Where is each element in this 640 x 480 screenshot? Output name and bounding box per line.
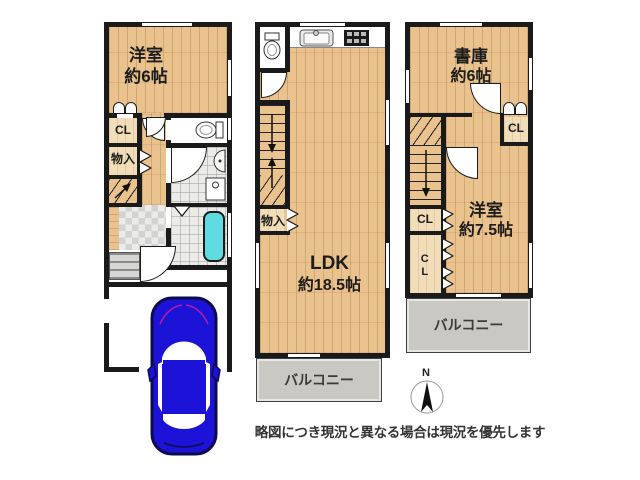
washbasin-icon <box>209 149 226 173</box>
f3-closet-bottom-label: CL <box>417 246 431 286</box>
f2-ldk-label: LDK 約18.5帖 <box>272 252 387 296</box>
compass-icon <box>409 377 445 417</box>
room-size: 約6帖 <box>421 67 521 87</box>
stairs-down-arrow-icon <box>267 112 277 154</box>
window <box>227 213 232 257</box>
wall <box>285 27 290 72</box>
stove-icon <box>344 30 369 46</box>
wall <box>166 113 171 120</box>
wall <box>109 203 142 207</box>
window <box>528 243 533 288</box>
window <box>142 22 192 27</box>
toilet-icon <box>263 32 281 60</box>
parking-wall <box>104 323 109 372</box>
room-name: LDK <box>272 252 387 276</box>
f1-closet-label: CL <box>109 123 137 138</box>
car-icon <box>146 292 222 458</box>
closet-door-arc <box>503 102 515 115</box>
stairs-up-arrow-icon <box>267 156 277 190</box>
wall <box>441 117 446 205</box>
wall <box>500 142 532 146</box>
stairs-up-arrow-icon <box>111 181 135 201</box>
room-size: 約7.5帖 <box>436 221 536 241</box>
f1-storage-label: 物入 <box>107 152 139 167</box>
folding-door-icon <box>442 238 455 262</box>
stairs-down-arrow-icon <box>421 148 431 198</box>
f3-library-label: 書庫 約6帖 <box>421 46 521 87</box>
window <box>227 118 232 140</box>
f2-balcony-label: バルコニー <box>258 372 380 390</box>
f3-balcony-label: バルコニー <box>408 317 529 335</box>
f3-western-room-label: 洋室 約7.5帖 <box>436 200 536 241</box>
f1-western-room-label: 洋室 約6帖 <box>96 45 196 88</box>
bath-folding-door-icon <box>173 205 191 217</box>
washing-machine-icon <box>205 177 226 201</box>
wall <box>109 143 142 147</box>
window <box>528 58 533 90</box>
wall <box>109 175 142 179</box>
wall <box>166 265 227 270</box>
floor-plan-canvas: 洋室 約6帖 CL 物入 バルコニー LDK 約18.5帖 物入 <box>0 0 640 480</box>
wall <box>285 100 290 205</box>
room-size: 約18.5帖 <box>272 276 387 296</box>
toilet-icon <box>194 120 224 140</box>
window <box>300 22 345 27</box>
folding-door-icon <box>286 207 300 233</box>
window <box>227 60 232 96</box>
disclaimer-caption: 略図につき現況と異なる場合は現況を優先します <box>240 421 560 441</box>
window <box>440 22 482 27</box>
parking-wall <box>227 287 232 372</box>
folding-door-icon <box>139 149 153 175</box>
parking-wall <box>104 367 139 372</box>
wall <box>164 113 227 118</box>
room-name: 書庫 <box>421 46 521 67</box>
closet-door-arc <box>125 102 137 114</box>
folding-door-icon <box>442 266 455 290</box>
f3-closet-mid-label: CL <box>409 212 441 227</box>
room-name: 洋室 <box>96 45 196 66</box>
room-name: 洋室 <box>436 200 536 221</box>
f3-closet-top-label: CL <box>504 121 528 136</box>
room-size: 約6帖 <box>96 66 196 87</box>
parking-wall <box>104 287 109 299</box>
kitchen-sink-icon <box>299 29 334 47</box>
window <box>385 100 390 145</box>
f2-storage-label: 物入 <box>259 214 287 229</box>
window <box>255 243 260 288</box>
window <box>405 70 410 103</box>
closet-door-arc <box>113 102 125 114</box>
closet-door-arc <box>515 102 527 115</box>
